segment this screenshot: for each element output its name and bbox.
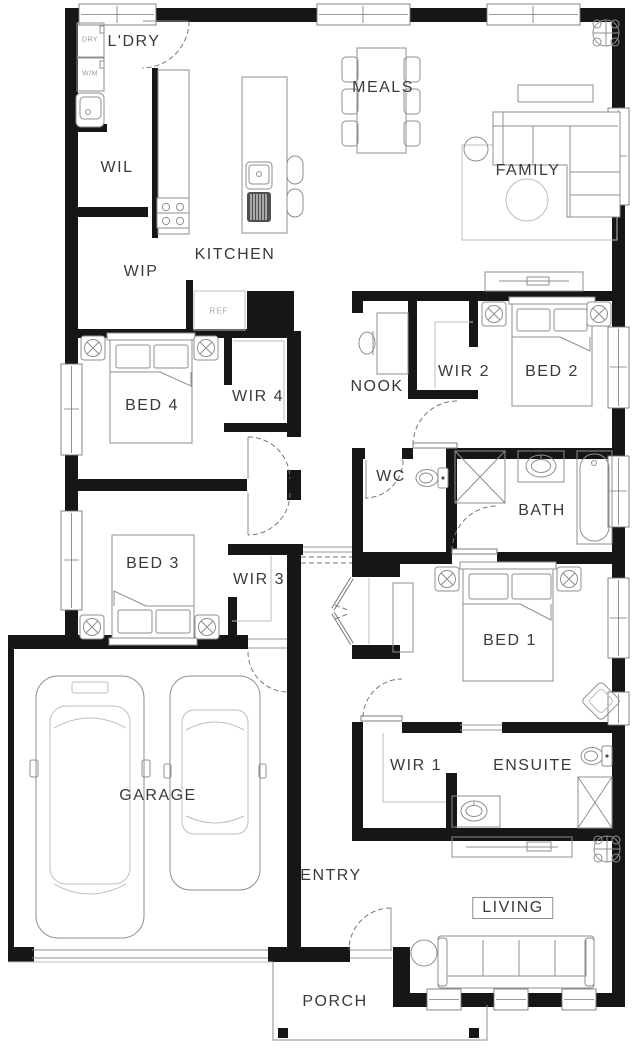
laundry-sink-icon	[76, 93, 104, 127]
shower-icon	[578, 777, 612, 828]
window	[608, 456, 629, 527]
downlight-icon	[435, 567, 459, 591]
ceiling-fan-icon	[594, 836, 620, 862]
door	[349, 908, 391, 950]
toilet-icon	[416, 468, 448, 488]
vanity-sink-icon	[452, 796, 500, 827]
wardrobe-shelf-lines	[233, 341, 284, 420]
window	[608, 578, 629, 658]
window	[61, 364, 82, 455]
floor-plan: L'DRY WIL WIP KITCHEN MEALS FAMILY NOOK …	[0, 0, 640, 1048]
wardrobe-shelf-lines	[435, 322, 473, 388]
double-door	[333, 578, 369, 644]
downlight-icon	[80, 615, 104, 639]
window	[487, 4, 580, 25]
window	[494, 989, 528, 1010]
window	[608, 327, 629, 408]
downlight-icon	[81, 336, 105, 360]
door	[365, 460, 403, 498]
console-icon	[518, 85, 593, 102]
door	[413, 401, 457, 448]
downlight-icon	[557, 567, 581, 591]
garage-door	[32, 950, 268, 958]
door	[248, 493, 290, 535]
downlight-icon	[587, 302, 611, 326]
bed-icon	[109, 535, 197, 645]
downlight-icon	[194, 336, 218, 360]
bed-icon	[107, 333, 195, 443]
sofa-icon	[438, 936, 594, 988]
window	[317, 4, 410, 25]
sofa-icon	[493, 112, 620, 217]
door	[452, 506, 497, 554]
window	[61, 511, 82, 610]
tv-unit-icon	[485, 272, 583, 291]
washing-machine-icon	[77, 58, 104, 91]
ottoman-icon	[464, 137, 488, 161]
downlight-icon	[482, 302, 506, 326]
ceiling-fan-icon	[593, 20, 619, 46]
door	[248, 652, 288, 692]
bathtub-icon	[577, 451, 612, 544]
bed-icon	[460, 562, 556, 681]
wardrobe-cabinet	[393, 583, 413, 652]
downlight-icon	[195, 615, 219, 639]
window	[79, 4, 156, 25]
window	[427, 989, 461, 1010]
car-icon	[30, 676, 150, 938]
bed-icon	[509, 297, 595, 406]
door	[248, 437, 290, 479]
desk-icon	[359, 313, 408, 374]
door	[361, 679, 402, 721]
door	[142, 21, 189, 68]
toilet-icon	[581, 746, 612, 766]
wardrobe-shelf-lines	[383, 733, 446, 802]
floor-plan-drawing	[0, 0, 640, 1048]
car-icon	[164, 676, 266, 890]
dryer-icon	[77, 23, 104, 57]
window	[562, 989, 596, 1010]
island-bench	[242, 77, 303, 233]
dining-table-icon	[342, 48, 420, 153]
cooktop-icon	[157, 198, 189, 228]
fridge-outline	[194, 291, 245, 330]
window	[608, 692, 629, 725]
side-table-icon	[411, 940, 437, 966]
wardrobe-shelf-lines	[232, 556, 271, 621]
